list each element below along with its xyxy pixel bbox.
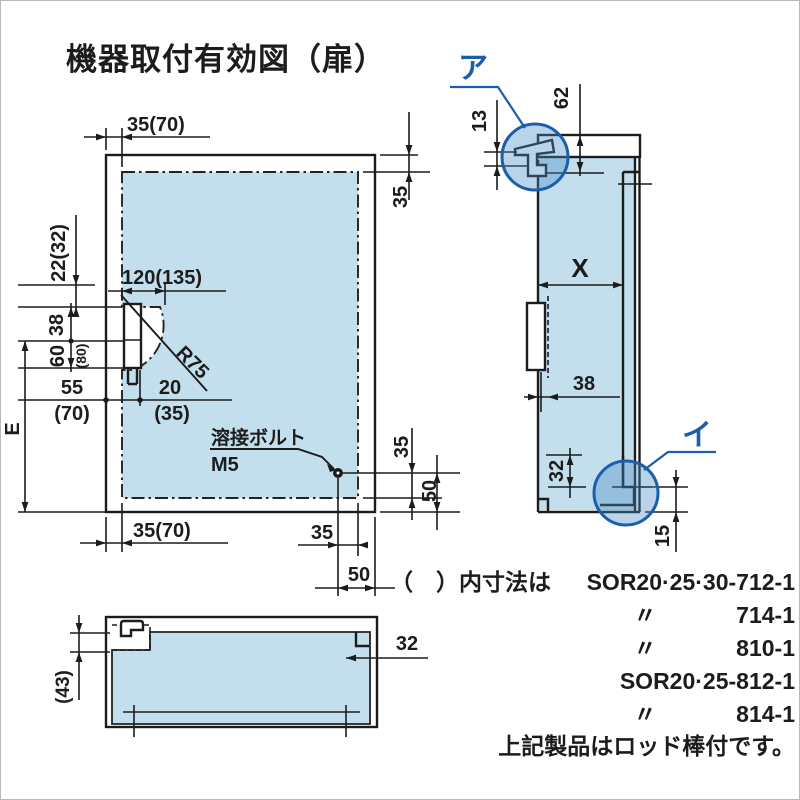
dim-label-62: 62 bbox=[551, 87, 573, 109]
note-model-1: SOR20·25·30-712-1 bbox=[587, 569, 796, 595]
detail-circle-b bbox=[594, 461, 658, 525]
dim-label-55-alt: (70) bbox=[54, 403, 90, 425]
dim-label-bottom-32: 32 bbox=[396, 633, 418, 655]
dim-label-60: 60 bbox=[47, 345, 69, 367]
dim-label-side-38: 38 bbox=[573, 373, 595, 395]
drawing-sheet: 機器取付有効図（扉） 35(70) 35 22(32) 38 bbox=[0, 0, 800, 800]
note-ditto-5: 〃 bbox=[634, 701, 657, 727]
dim-chain-dot bbox=[137, 397, 143, 403]
dim-label-right-50: 50 bbox=[419, 480, 441, 502]
page-title: 機器取付有効図（扉） bbox=[66, 42, 386, 77]
callout-b-leader bbox=[644, 452, 716, 470]
technical-drawing: 機器取付有効図（扉） 35(70) 35 22(32) 38 bbox=[0, 0, 800, 800]
dim-label-38: 38 bbox=[46, 314, 68, 336]
dim-label-x: X bbox=[571, 253, 589, 283]
note-model-4: SOR20·25-812-1 bbox=[620, 668, 795, 694]
note-ditto-3: 〃 bbox=[634, 635, 657, 661]
dim-label-topright-35: 35 bbox=[390, 186, 412, 208]
dim-label-120-135: 120(135) bbox=[122, 267, 202, 289]
front-view: 35(70) 35 22(32) 38 60 (80) 55 (70) 20 (… bbox=[2, 112, 460, 596]
bolt-size-label: M5 bbox=[211, 454, 239, 476]
dim-chain-dot bbox=[68, 338, 73, 343]
dim-label-55: 55 bbox=[61, 377, 83, 399]
callout-label-b: イ bbox=[682, 419, 712, 452]
dim-label-e: E bbox=[2, 422, 24, 435]
side-effective-area bbox=[539, 158, 635, 510]
note-footer: 上記製品はロッド棒付です。 bbox=[498, 733, 795, 759]
note-intro: （ ）内寸法は bbox=[390, 569, 551, 595]
dim-label-top-35-70: 35(70) bbox=[127, 114, 185, 136]
dim-label-20: 20 bbox=[159, 377, 181, 399]
dim-label-20-alt: (35) bbox=[154, 403, 190, 425]
note-ditto-2: 〃 bbox=[634, 602, 657, 628]
dim-label-80: (80) bbox=[73, 344, 89, 369]
notes-block: （ ）内寸法は SOR20·25·30-712-1 〃 714-1 〃 810-… bbox=[390, 569, 795, 759]
dim-chain-dot bbox=[103, 397, 109, 403]
dim-label-side-32: 32 bbox=[546, 460, 568, 482]
note-num-3: 810-1 bbox=[736, 635, 795, 661]
dim-label-43: (43) bbox=[53, 670, 74, 704]
dim-label-13: 13 bbox=[469, 110, 491, 132]
dim-label-bottom-35: 35 bbox=[311, 522, 333, 544]
dim-label-22-32: 22(32) bbox=[48, 224, 70, 282]
callout-label-a: ア bbox=[458, 52, 488, 85]
dim-label-15: 15 bbox=[652, 525, 674, 547]
note-num-5: 814-1 bbox=[736, 701, 795, 727]
bottom-view: (43) 32 bbox=[53, 615, 428, 737]
note-num-2: 714-1 bbox=[736, 602, 795, 628]
dim-label-bottomleft-35-70: 35(70) bbox=[133, 520, 191, 542]
dim-label-bottom-50: 50 bbox=[348, 564, 370, 586]
detail-circle-a bbox=[502, 124, 568, 190]
dim-label-right-35: 35 bbox=[391, 436, 413, 458]
side-view: ア イ 13 62 X 38 32 15 bbox=[450, 52, 716, 552]
bolt-label: 溶接ボルト bbox=[211, 426, 306, 449]
